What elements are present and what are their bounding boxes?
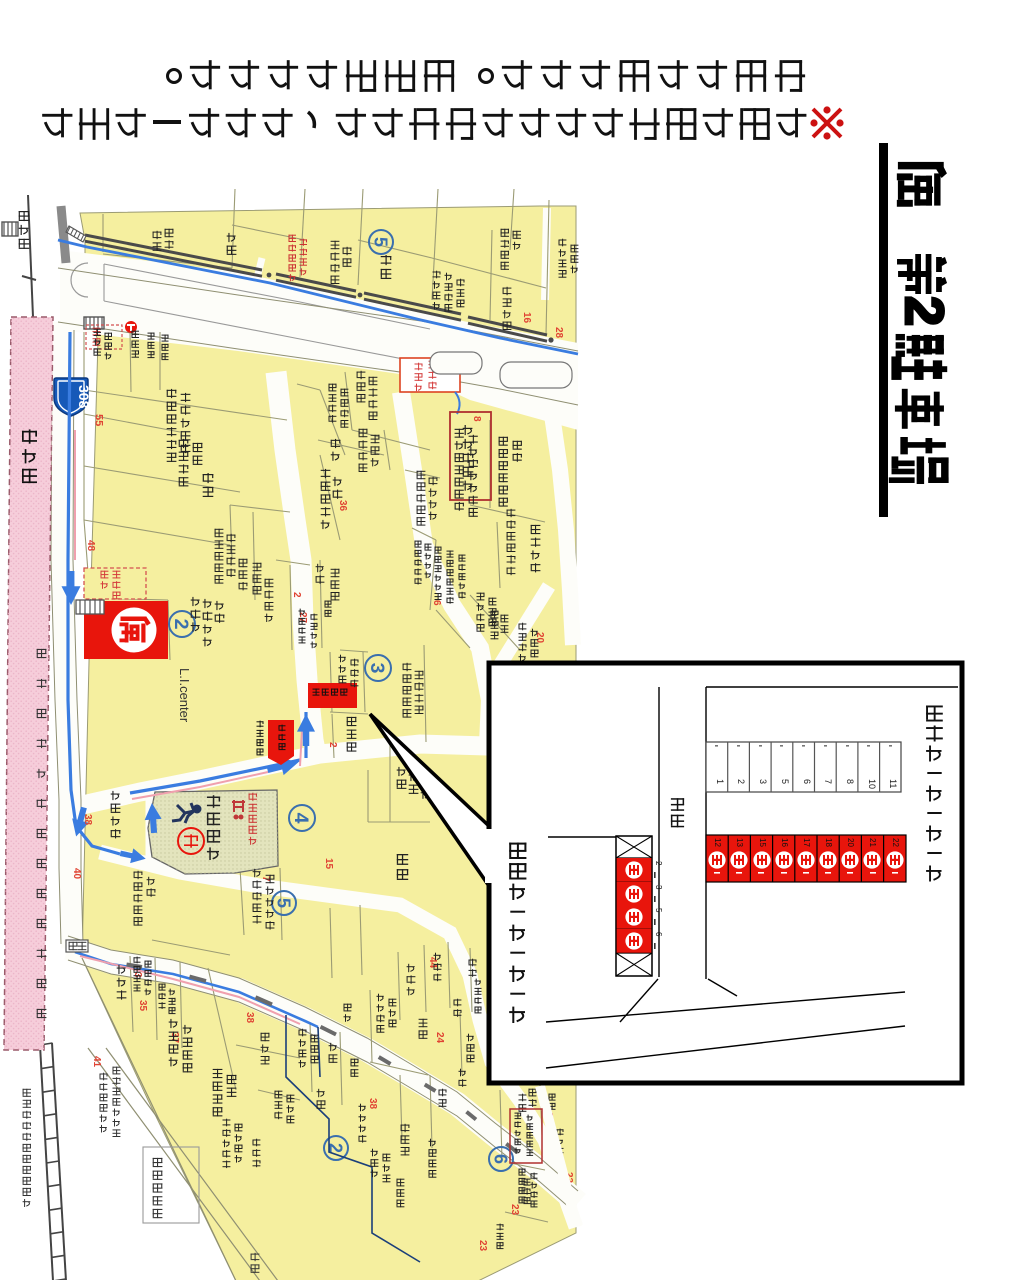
svg-text:23: 23 bbox=[477, 1240, 488, 1252]
svg-text:22: 22 bbox=[891, 838, 900, 847]
svg-text:7: 7 bbox=[823, 779, 833, 784]
svg-text:6: 6 bbox=[490, 1154, 510, 1164]
svg-text:3: 3 bbox=[654, 885, 663, 890]
svg-text:48: 48 bbox=[85, 540, 96, 552]
svg-text:2: 2 bbox=[894, 296, 954, 326]
svg-text:20: 20 bbox=[534, 632, 545, 644]
svg-text:1: 1 bbox=[715, 779, 725, 784]
svg-text:8: 8 bbox=[471, 416, 482, 422]
svg-text:6: 6 bbox=[802, 779, 812, 784]
svg-text:18: 18 bbox=[824, 838, 833, 847]
svg-text:20: 20 bbox=[846, 838, 855, 847]
svg-text:44: 44 bbox=[427, 957, 438, 969]
svg-text:5: 5 bbox=[654, 908, 663, 913]
svg-text:2: 2 bbox=[654, 861, 663, 866]
svg-text:38: 38 bbox=[82, 814, 93, 826]
svg-text:6: 6 bbox=[654, 932, 663, 937]
svg-text:13: 13 bbox=[735, 838, 744, 847]
svg-text:12: 12 bbox=[713, 838, 722, 847]
svg-text:11: 11 bbox=[888, 779, 898, 788]
svg-text:17: 17 bbox=[802, 838, 811, 847]
svg-text:2: 2 bbox=[736, 779, 746, 784]
svg-text:35: 35 bbox=[137, 1000, 148, 1012]
svg-text:38: 38 bbox=[367, 1098, 378, 1110]
svg-text:10: 10 bbox=[867, 779, 877, 789]
svg-text:28: 28 bbox=[553, 327, 564, 339]
svg-text:41: 41 bbox=[91, 1056, 102, 1068]
svg-text:5: 5 bbox=[780, 779, 790, 784]
svg-text:37: 37 bbox=[169, 1032, 180, 1044]
svg-text:3: 3 bbox=[366, 663, 388, 674]
svg-text:16: 16 bbox=[521, 312, 532, 324]
svg-text:5: 5 bbox=[370, 237, 390, 247]
svg-text:2: 2 bbox=[170, 619, 192, 630]
svg-text:24: 24 bbox=[434, 1032, 445, 1044]
svg-text:15: 15 bbox=[323, 858, 334, 870]
svg-text:8: 8 bbox=[845, 779, 855, 784]
svg-text:15: 15 bbox=[758, 838, 767, 847]
svg-text:2: 2 bbox=[327, 742, 338, 748]
svg-text:L.I.center: L.I.center bbox=[177, 668, 192, 723]
svg-text:6: 6 bbox=[431, 600, 442, 606]
svg-text:21: 21 bbox=[868, 838, 877, 847]
svg-text:5: 5 bbox=[273, 898, 293, 908]
svg-text:36: 36 bbox=[337, 500, 348, 512]
svg-text:308: 308 bbox=[76, 385, 92, 409]
svg-text:40: 40 bbox=[71, 868, 82, 880]
svg-text:38: 38 bbox=[244, 1012, 255, 1024]
svg-text:16: 16 bbox=[780, 838, 789, 847]
svg-text:2: 2 bbox=[291, 592, 302, 598]
svg-text:4: 4 bbox=[290, 813, 312, 824]
svg-text:55: 55 bbox=[92, 414, 104, 426]
svg-text:23: 23 bbox=[509, 1204, 520, 1216]
svg-text:3: 3 bbox=[758, 779, 768, 784]
